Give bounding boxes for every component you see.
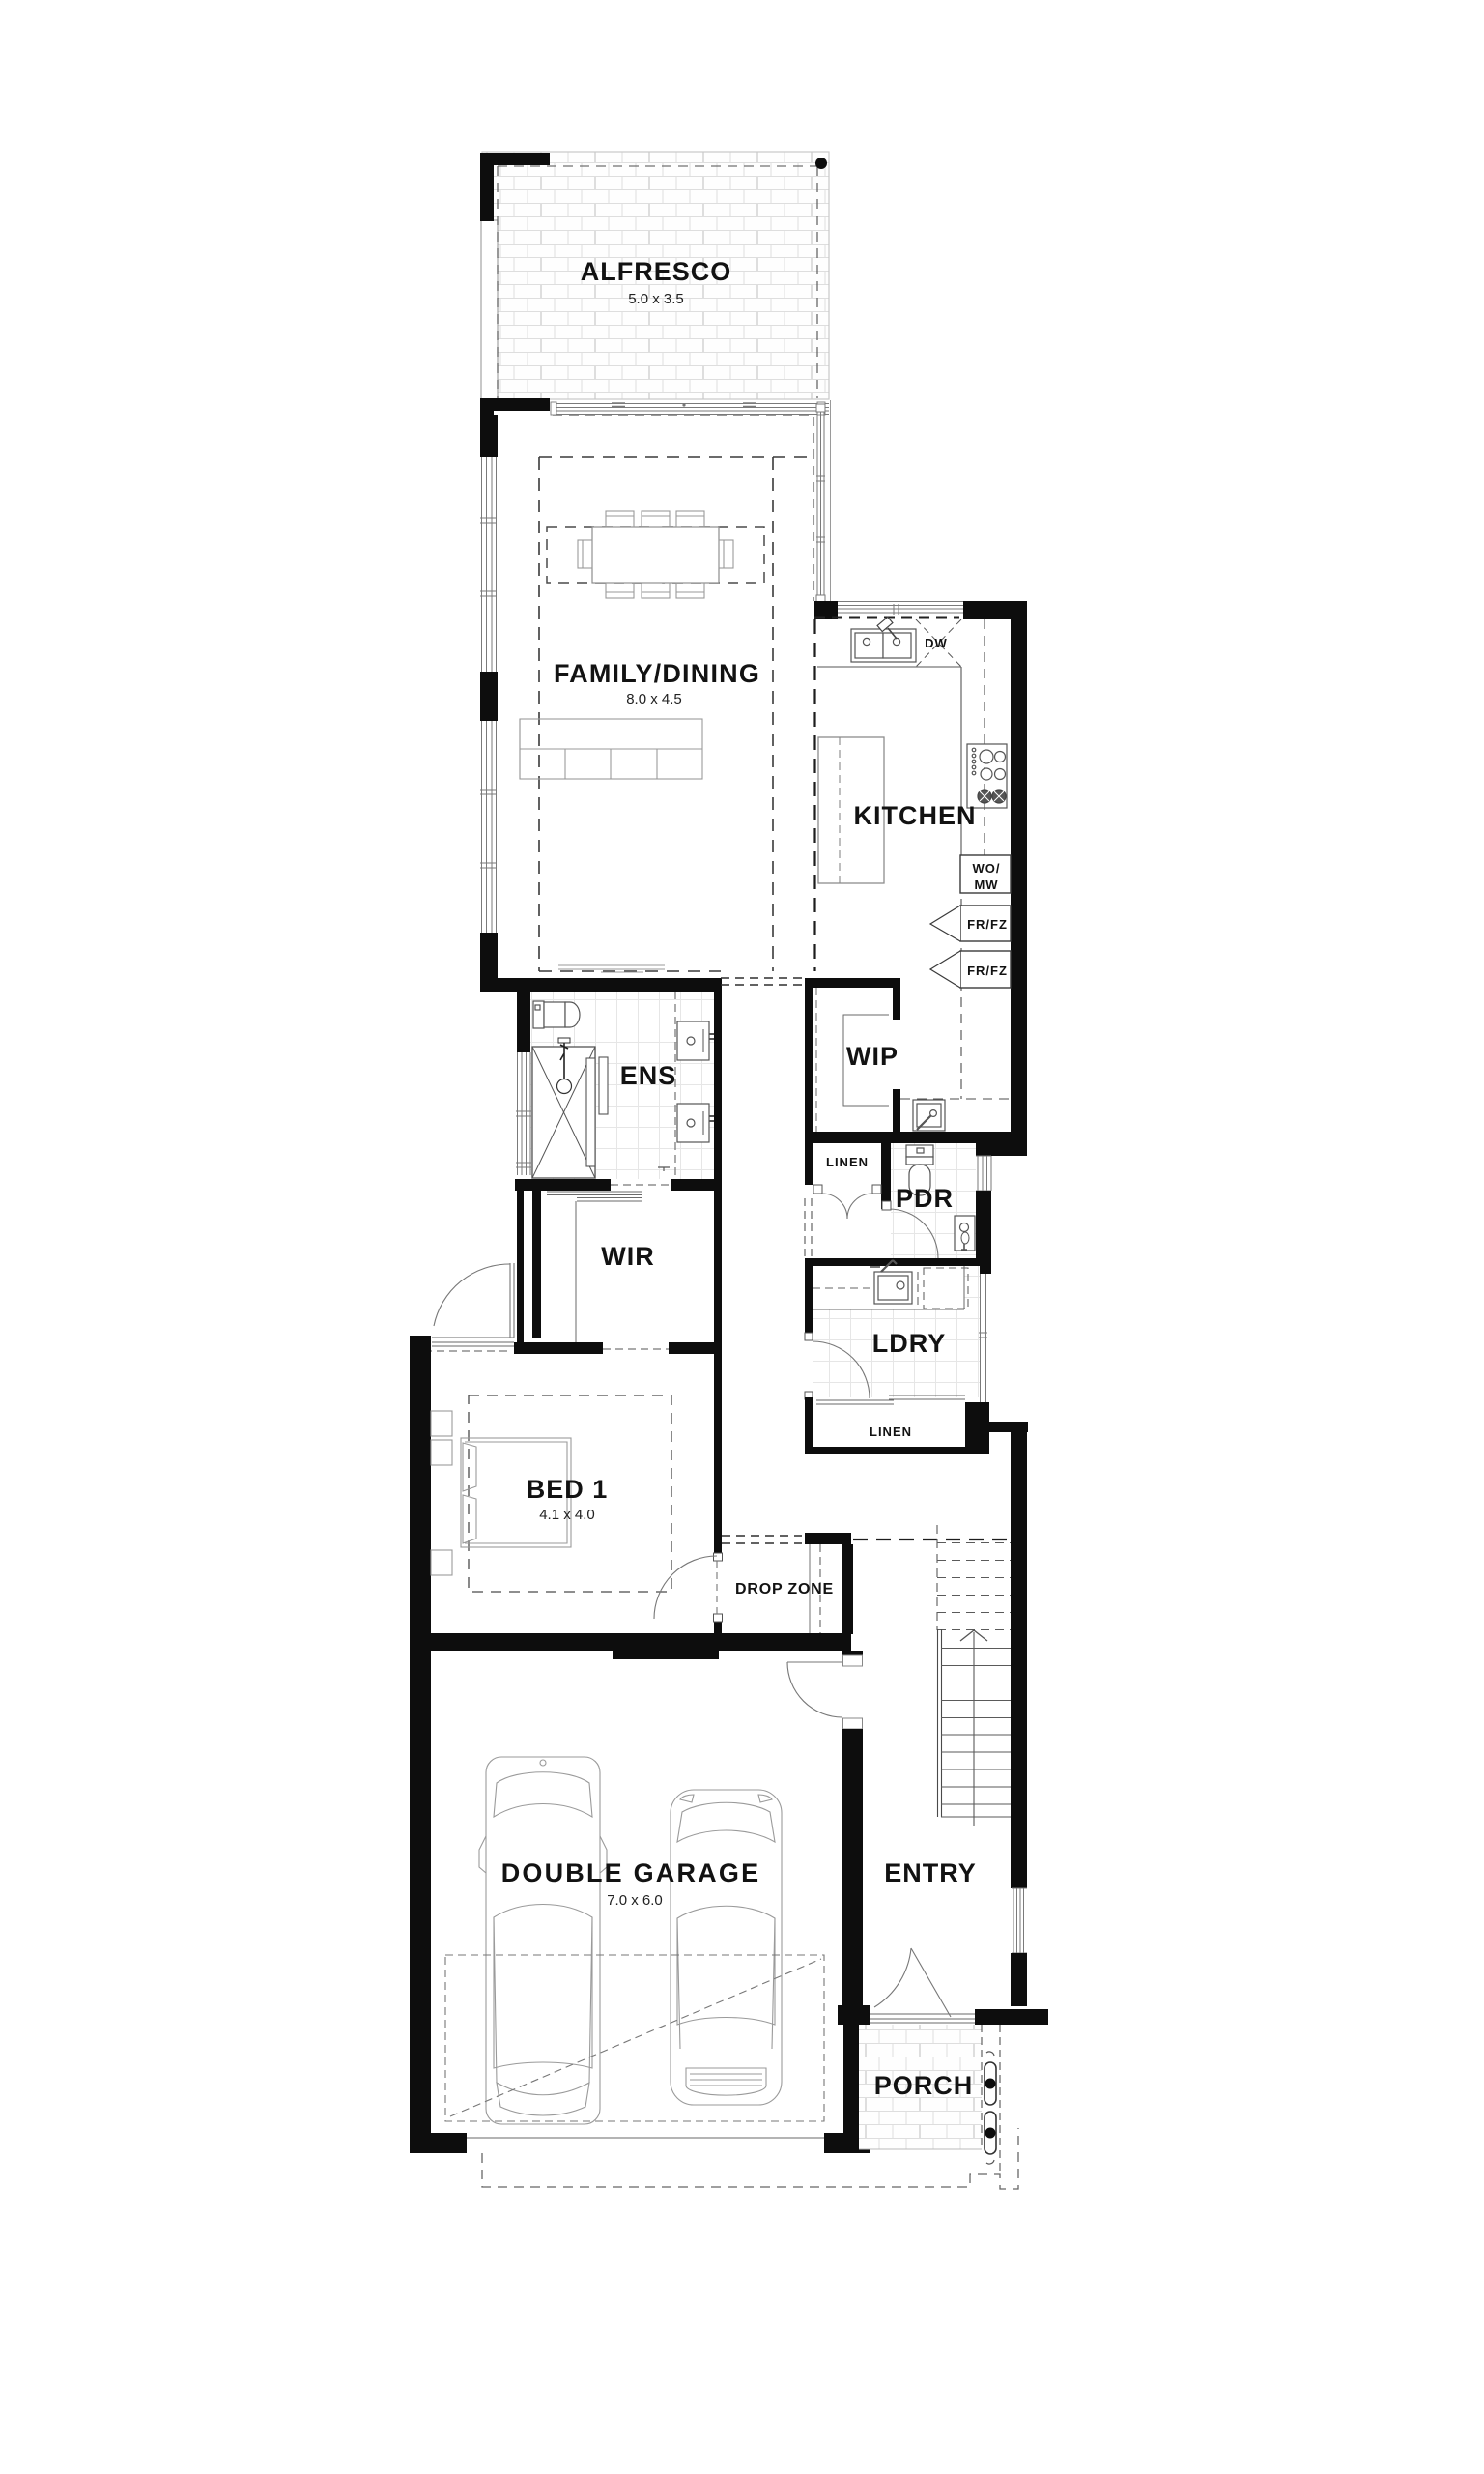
- svg-text:DOUBLE GARAGE: DOUBLE GARAGE: [501, 1858, 761, 1887]
- svg-text:PDR: PDR: [896, 1184, 954, 1213]
- svg-text:PORCH: PORCH: [874, 2071, 974, 2100]
- svg-text:FR/FZ: FR/FZ: [967, 964, 1008, 978]
- svg-text:LDRY: LDRY: [872, 1329, 947, 1358]
- svg-text:DROP ZONE: DROP ZONE: [735, 1581, 834, 1597]
- svg-text:FR/FZ: FR/FZ: [967, 917, 1008, 932]
- svg-text:8.0 x 4.5: 8.0 x 4.5: [626, 691, 682, 707]
- svg-text:WO/: WO/: [973, 861, 1001, 876]
- svg-text:BED 1: BED 1: [527, 1475, 609, 1504]
- svg-text:4.1 x 4.0: 4.1 x 4.0: [539, 1507, 595, 1523]
- svg-text:FAMILY/DINING: FAMILY/DINING: [554, 659, 760, 688]
- svg-text:5.0 x 3.5: 5.0 x 3.5: [628, 291, 684, 307]
- svg-text:KITCHEN: KITCHEN: [854, 801, 977, 830]
- svg-text:DW: DW: [925, 636, 948, 650]
- svg-text:LINEN: LINEN: [826, 1155, 869, 1169]
- svg-text:ENS: ENS: [620, 1061, 677, 1090]
- svg-text:ENTRY: ENTRY: [884, 1858, 977, 1887]
- svg-text:7.0 x 6.0: 7.0 x 6.0: [607, 1892, 663, 1909]
- svg-text:LINEN: LINEN: [870, 1424, 912, 1439]
- svg-text:ALFRESCO: ALFRESCO: [581, 257, 732, 286]
- svg-text:MW: MW: [974, 877, 998, 892]
- svg-text:WIR: WIR: [601, 1242, 654, 1271]
- svg-text:WIP: WIP: [846, 1042, 899, 1071]
